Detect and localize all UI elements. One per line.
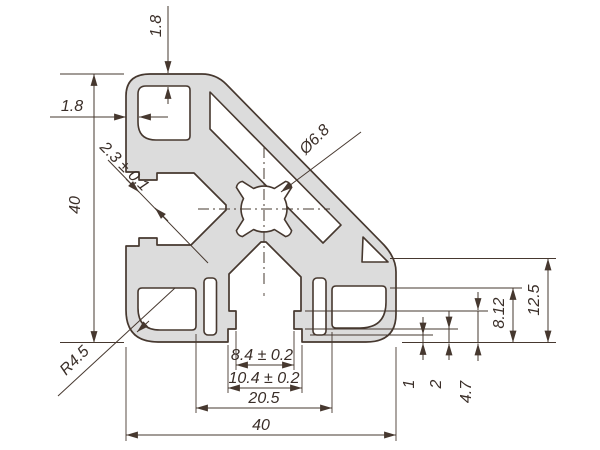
technical-drawing: 1.8 1.8 40 2.3 ± 0.1 Ø6.8 R4.5 8.4 ± 0.2… (0, 0, 600, 450)
dim-label-right-face-height: 12.5 (526, 284, 543, 315)
profile-body (126, 74, 396, 342)
dim-label-height: 40 (67, 196, 84, 214)
dim-label-cavity-height: 8.12 (491, 297, 508, 328)
drawing-canvas: 1.8 1.8 40 2.3 ± 0.1 Ø6.8 R4.5 8.4 ± 0.2… (0, 0, 600, 450)
dim-label-lip-depth: 4.7 (458, 380, 475, 403)
dim-label-bore: Ø6.8 (296, 121, 333, 158)
cavity-top-left (138, 86, 190, 140)
dim-label-core-width: 20.5 (247, 390, 279, 407)
dim-label-corner-radius: R4.5 (57, 343, 93, 379)
dim-label-web-wall: 2 (428, 379, 445, 389)
dim-label-thin-wall: 1 (401, 380, 418, 389)
dim-label-left-wall: 1.8 (61, 98, 83, 115)
cavity-bottom-right (332, 286, 386, 328)
slit-left (204, 278, 217, 335)
dim-label-top-wall: 1.8 (148, 15, 165, 37)
slit-right (313, 278, 326, 335)
dim-label-width: 40 (252, 417, 270, 434)
dim-label-slot-lip-width: 8.4 ± 0.2 (231, 347, 293, 364)
dim-label-slot-mouth-width: 10.4 ± 0.2 (228, 370, 299, 387)
